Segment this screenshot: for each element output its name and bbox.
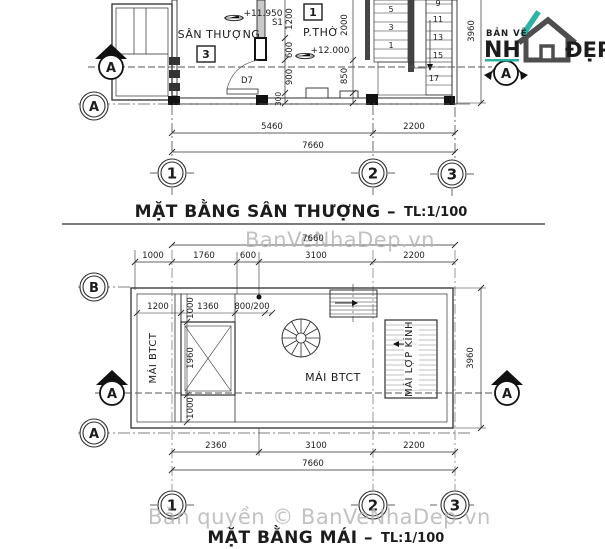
dim-900: 900 <box>285 69 295 85</box>
step-1: 1 <box>388 41 393 50</box>
label-mai-lop-kinh: MÁI LỢP KÍNH <box>402 321 415 397</box>
dim-2000: 2000 <box>340 14 350 36</box>
step-11: 11 <box>433 15 443 24</box>
level-worship: +12.000 <box>310 46 349 56</box>
dim-1200: 1200 <box>285 8 295 30</box>
plan1-title: MẶT BẰNG SÂN THƯỢNG – <box>135 198 396 222</box>
step-5: 5 <box>388 5 393 14</box>
dim-1760-roof: 1760 <box>193 251 215 261</box>
label-mai-btct-strip: MÁI BTCT <box>146 332 159 383</box>
grid-3-top: 3 <box>447 166 457 184</box>
step-9: 9 <box>435 0 440 8</box>
step-3: 3 <box>388 23 393 32</box>
plan1-scale: TL:1/100 <box>404 205 467 220</box>
watermark-top: BanVeNhaDep.vn <box>245 228 435 252</box>
roof-vent-fan <box>282 319 320 357</box>
dim-300: 300 <box>274 92 283 107</box>
dim-2200-top: 2200 <box>403 122 425 132</box>
terrace-bottom-wall <box>177 88 455 105</box>
watermark-bottom: Bản quyền © BanVeNhaDep.vn <box>148 505 491 529</box>
room-terrace-label: SÂN THƯỢNG <box>178 28 261 41</box>
grid-2-top: 2 <box>368 165 378 183</box>
roof-ladder <box>330 284 377 322</box>
dim-1960-inner: 1960 <box>186 347 196 369</box>
dim-3960-top: 3960 <box>467 20 477 42</box>
door-d7-label: D7 <box>241 76 253 86</box>
dim-5460: 5460 <box>261 122 283 132</box>
dim-1360-inner: 1360 <box>197 302 219 312</box>
grid-circles-top <box>150 159 474 196</box>
grid-row-a2: A <box>89 427 99 442</box>
dim-1000-inner-bottom: 1000 <box>186 397 196 419</box>
level-symbol-terrace <box>224 15 244 20</box>
staircase <box>374 0 457 104</box>
drawing-sheet: +11.950 SÂN THƯỢNG 3 S1 1 P.THỜ +12.000 … <box>0 0 605 549</box>
step-15: 15 <box>433 51 443 60</box>
dim-600-roof: 600 <box>240 251 256 261</box>
logo-nh-text: NH <box>484 38 521 63</box>
grid-1-top: 1 <box>167 165 177 183</box>
dim-1000-inner-top: 1000 <box>186 297 196 319</box>
dim-7660-roof-b: 7660 <box>302 459 324 469</box>
dim-3100-roof-b: 3100 <box>305 441 327 451</box>
dim-850: 850 <box>340 68 350 84</box>
plan2-title: MẶT BẰNG MÁI – <box>207 524 373 548</box>
dim-7660-top: 7660 <box>302 141 324 151</box>
room-worship-number: 1 <box>309 6 317 19</box>
dim-1000-roof: 1000 <box>142 251 164 261</box>
plan-roof <box>78 242 523 519</box>
dim-3960-roof: 3960 <box>466 347 476 369</box>
dim-3100-roof: 3100 <box>305 251 327 261</box>
room-worship-label: P.THỜ <box>303 26 339 39</box>
step-13: 13 <box>433 33 443 42</box>
grid-row-a: A <box>89 100 99 115</box>
step-17: 17 <box>429 74 439 83</box>
dim-1200-inner: 1200 <box>147 302 169 312</box>
cad-drawing: +11.950 SÂN THƯỢNG 3 S1 1 P.THỜ +12.000 … <box>0 0 605 549</box>
wall-s1-label: S1 <box>272 18 283 28</box>
dim-2200-roof: 2200 <box>403 251 425 261</box>
plan2-scale: TL:1/100 <box>381 531 444 546</box>
room-terrace-number: 3 <box>202 48 210 61</box>
dim-chain-mid <box>350 0 356 106</box>
roof-drain-dot <box>257 295 262 300</box>
section-a-right: A <box>501 67 511 82</box>
terrace-planter <box>112 4 172 100</box>
grid-row-b: B <box>89 281 99 296</box>
logo-dep-text: ĐẸP <box>565 38 605 62</box>
label-mai-btct-main: MÁI BTCT <box>305 371 361 384</box>
dim-2200-roof-b: 2200 <box>403 441 425 451</box>
dim-7660-roof-top: 7660 <box>302 234 324 244</box>
section-a2-right: A <box>502 387 512 402</box>
section-a2-left: A <box>107 387 117 402</box>
dim-600: 600 <box>285 42 295 58</box>
section-a-left: A <box>106 61 116 76</box>
worship-right-wall <box>365 0 370 60</box>
dim-2360-roof: 2360 <box>205 441 227 451</box>
dim-800-200-inner: 800/200 <box>234 302 269 312</box>
dim-height-right <box>457 0 486 106</box>
